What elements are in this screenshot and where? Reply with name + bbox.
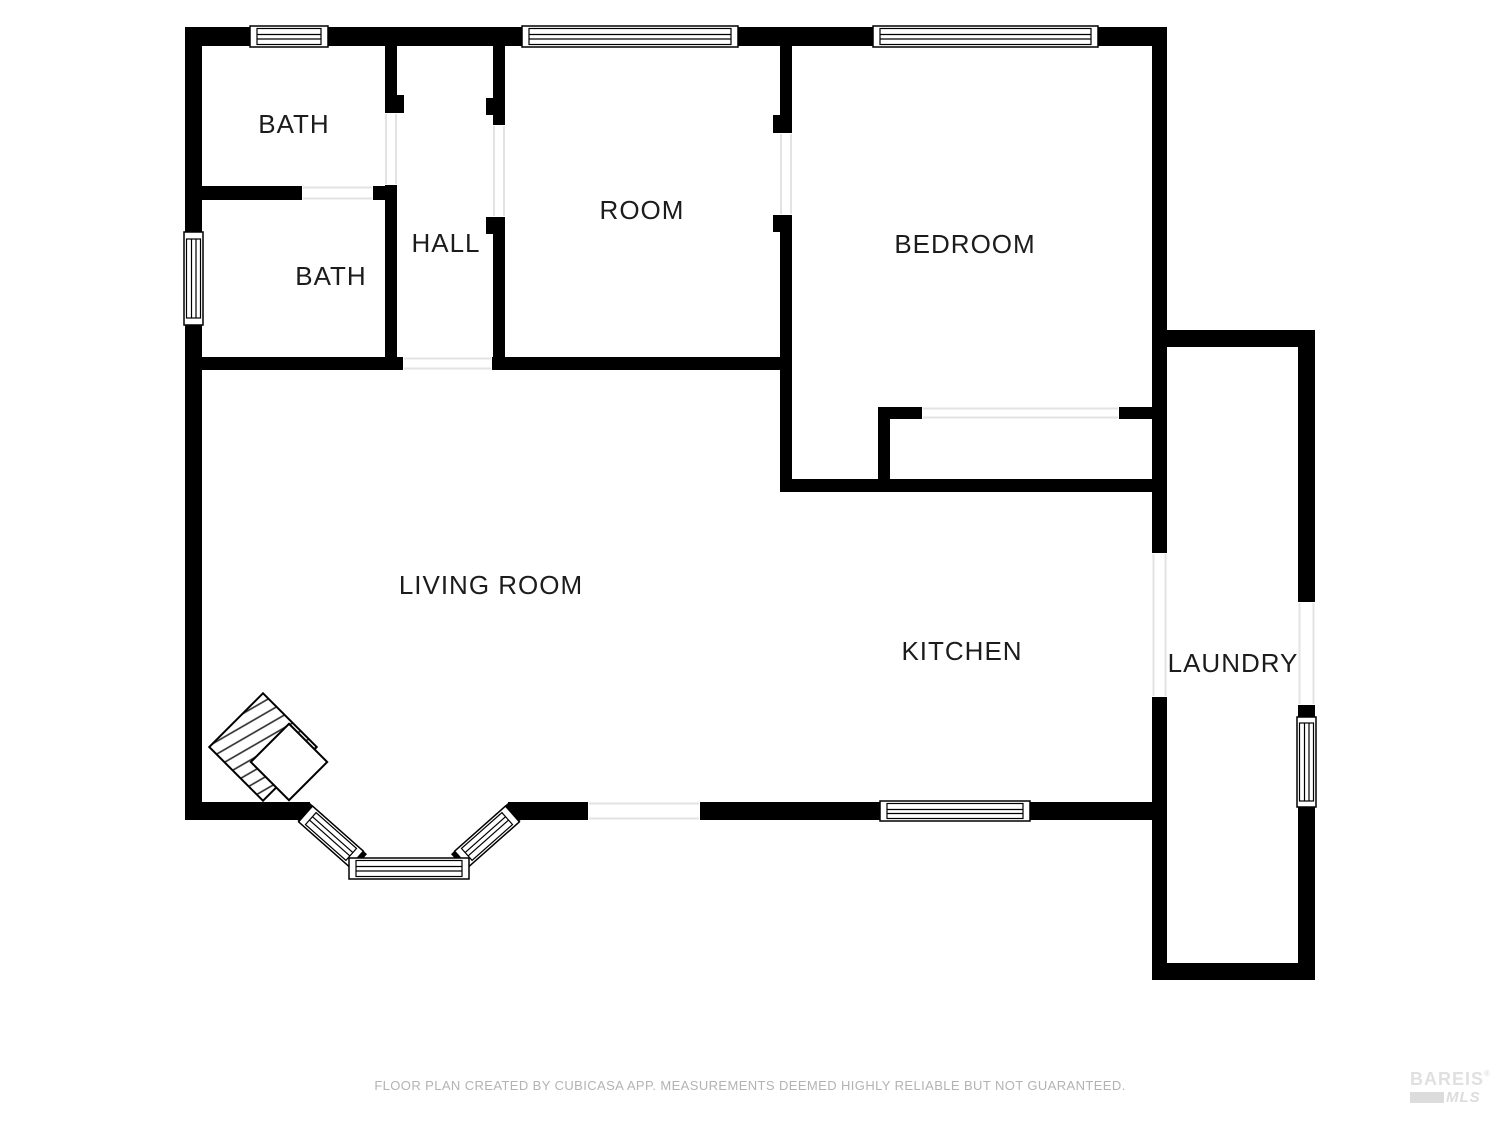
room-label-bath-1: BATH xyxy=(258,109,329,139)
wall-bath-divider xyxy=(202,186,302,200)
window-frame xyxy=(356,861,462,877)
wall-right-lower xyxy=(1152,697,1167,980)
wall-hall-left-upper xyxy=(385,40,397,113)
wall-laundry-right-upper xyxy=(1298,330,1315,602)
wall-hall-left-lower xyxy=(385,185,397,358)
window xyxy=(880,801,1030,821)
wall-room-left-upper xyxy=(493,40,505,125)
fireplace-symbol xyxy=(209,693,327,800)
wall-room-left-lower xyxy=(493,217,505,370)
wall-laundry-top xyxy=(1160,330,1315,347)
watermark-brand-text: BAREIS xyxy=(1410,1069,1484,1089)
window-frame xyxy=(880,29,1091,45)
wall-left xyxy=(185,27,202,820)
room-label-laundry: LAUNDRY xyxy=(1168,648,1299,678)
wall-laundry-right-lower xyxy=(1298,807,1315,980)
room-label-bath-2: BATH xyxy=(295,261,366,291)
window-frame xyxy=(887,804,1023,819)
window-frame xyxy=(305,813,356,861)
room-label-bedroom: BEDROOM xyxy=(894,229,1035,259)
window-frame xyxy=(461,813,512,861)
wall-bottom-left xyxy=(185,802,310,820)
wall-room-bottom xyxy=(492,357,792,370)
window xyxy=(349,858,469,879)
window-frame xyxy=(187,239,201,318)
room-label-living-room: LIVING ROOM xyxy=(399,570,583,600)
walls xyxy=(185,27,1315,980)
floor-plan-drawing: BATH BATH HALL ROOM BEDROOM LIVING ROOM … xyxy=(0,0,1500,1125)
wall-closet-stub-right xyxy=(1119,407,1153,419)
wall-laundry-window-cap xyxy=(1298,705,1315,717)
room-labels: BATH BATH HALL ROOM BEDROOM LIVING ROOM … xyxy=(258,109,1298,678)
registered-trademark-icon: ® xyxy=(1484,1069,1491,1078)
window xyxy=(522,26,738,47)
wall-bath-hall-bottom xyxy=(185,357,403,370)
footer-disclaimer: FLOOR PLAN CREATED BY CUBICASA APP. MEAS… xyxy=(0,1078,1500,1093)
room-label-room: ROOM xyxy=(600,195,685,225)
window xyxy=(184,232,203,325)
door-jamb xyxy=(486,98,493,115)
watermark-bar-icon xyxy=(1410,1092,1444,1103)
window-frame xyxy=(529,29,731,45)
wall-closet-stub-left xyxy=(878,407,922,419)
door-jamb xyxy=(773,115,780,133)
watermark-mls-row: MLS xyxy=(1410,1090,1496,1105)
wall-bedroom-left-upper xyxy=(780,40,792,133)
wall-bedroom-left-lower xyxy=(780,215,792,492)
window xyxy=(873,26,1098,47)
wall-bedroom-bottom xyxy=(788,479,1167,492)
door-jamb xyxy=(773,215,780,232)
watermark-brand-row: BAREIS® xyxy=(1410,1070,1496,1088)
wall-right-upper xyxy=(1152,27,1167,553)
watermark-logo: BAREIS® MLS xyxy=(1410,1070,1496,1105)
bay-window xyxy=(299,806,520,879)
window-frame xyxy=(257,29,321,45)
window xyxy=(1297,717,1316,807)
floor-plan-page: BATH BATH HALL ROOM BEDROOM LIVING ROOM … xyxy=(0,0,1500,1125)
window xyxy=(250,26,328,47)
door-jamb xyxy=(397,95,404,113)
room-label-hall: HALL xyxy=(411,228,480,258)
watermark-suffix-text: MLS xyxy=(1446,1090,1481,1105)
window-frame xyxy=(1300,723,1314,801)
wall-laundry-bottom xyxy=(1152,963,1315,980)
windows xyxy=(184,26,1316,821)
door-jamb xyxy=(486,217,493,234)
room-label-kitchen: KITCHEN xyxy=(901,636,1022,666)
